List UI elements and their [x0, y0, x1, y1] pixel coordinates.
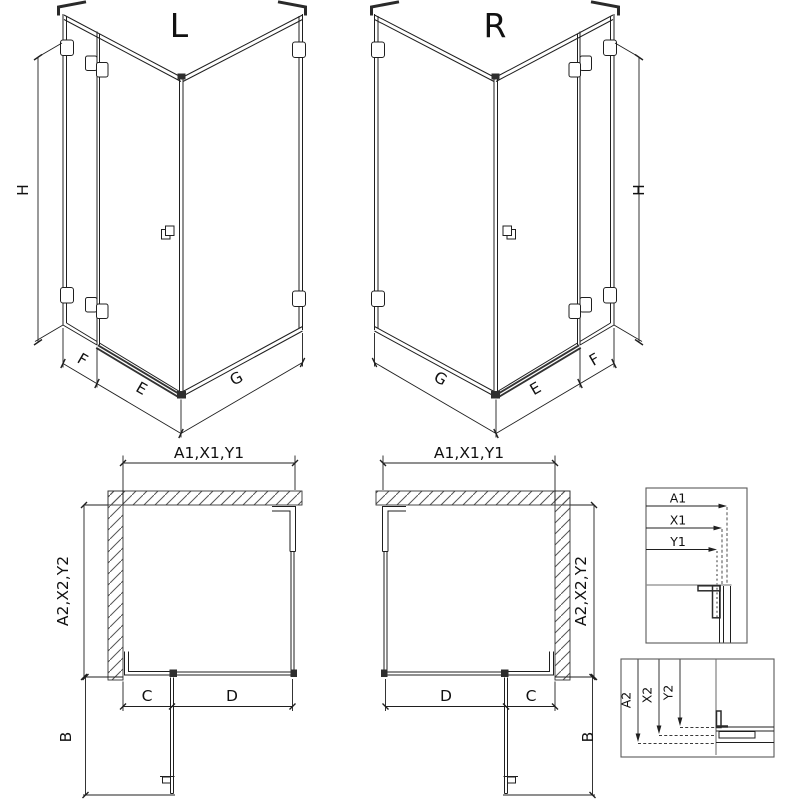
detail-label-x1: X1 [670, 513, 687, 528]
plan-dim-c-right: C [526, 687, 537, 705]
plan-dim-top-right: A1,X1,Y1 [434, 444, 504, 462]
plan-view-right: A1,X1,Y1 A2,X2,Y2 D C B [376, 444, 597, 798]
dim-label-g-left: G [227, 368, 246, 390]
dim-label-h-right: H [630, 184, 648, 196]
plan-dim-d-left: D [226, 687, 238, 705]
drawing-canvas: L H F E G R H G E F A1,X1,Y1 A2,X2,Y2 C … [0, 0, 800, 800]
detail-label-a2: A2 [619, 692, 634, 709]
view-label-right: R [484, 6, 507, 45]
plan-dim-top-left: A1,X1,Y1 [174, 444, 244, 462]
plan-dim-b-left: B [57, 732, 75, 743]
dim-label-g-right: G [431, 368, 450, 390]
hatched-wall-top [376, 491, 570, 505]
detail-a2-x2-y2: A2 X2 Y2 [619, 659, 775, 757]
plan-dim-d-right: D [440, 687, 452, 705]
plan-dim-b-right: B [579, 732, 597, 743]
hatched-wall-top [108, 491, 302, 505]
plan-dim-side-left: A2,X2,Y2 [54, 556, 72, 626]
detail-label-y2: Y2 [661, 685, 676, 702]
dim-label-e-left: E [133, 378, 150, 398]
detail-label-x2: X2 [640, 687, 655, 704]
technical-drawing: L H F E G R H G E F A1,X1,Y1 A2,X2,Y2 C … [0, 0, 800, 800]
dim-label-f-left: F [74, 350, 91, 370]
detail-a1-x1-y1: A1 X1 Y1 [646, 488, 747, 643]
dim-label-h-left: H [14, 184, 32, 196]
dim-label-f-right: F [586, 350, 603, 370]
iso-view-left: L H F E G [14, 2, 306, 438]
hatched-wall-side [108, 491, 123, 680]
plan-dim-c-left: C [142, 687, 153, 705]
hatched-wall-side [555, 491, 570, 680]
iso-view-right: R H G E F [372, 2, 649, 438]
plan-dim-side-right: A2,X2,Y2 [572, 556, 590, 626]
dim-label-e-right: E [527, 378, 544, 398]
detail-label-a1: A1 [670, 491, 687, 506]
detail-label-y1: Y1 [669, 534, 686, 549]
view-label-left: L [170, 6, 189, 45]
plan-view-left: A1,X1,Y1 A2,X2,Y2 C D B [54, 444, 302, 798]
